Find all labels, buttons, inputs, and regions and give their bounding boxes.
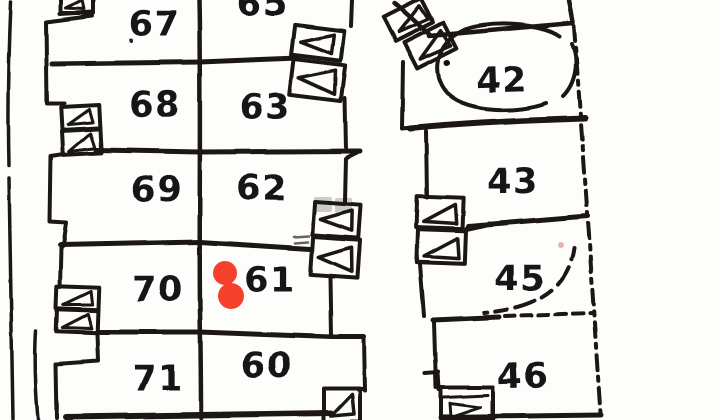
east-boundary-dashed	[574, 26, 601, 420]
unit-label-61: 61	[244, 261, 296, 301]
unit-label-65: 65	[237, 0, 289, 24]
unit-label-60: 60	[241, 346, 293, 386]
porch-stairs-icon	[61, 0, 93, 13]
porch-stairs-icon	[415, 196, 467, 264]
plat-map-scan: 67 68 69 70 71 65 63 62 61 60 42 43 45 4…	[0, 0, 720, 420]
unit-label-69: 69	[131, 170, 183, 210]
plat-map-canvas: 67 68 69 70 71 65 63 62 61 60 42 43 45 4…	[0, 0, 720, 420]
unit-label-70: 70	[132, 270, 184, 310]
location-marker	[213, 261, 244, 309]
porch-stairs-icon	[286, 25, 349, 101]
porch-stairs-icon	[310, 201, 363, 277]
unit-label-62: 62	[236, 169, 288, 210]
road-edge-line	[8, 2, 38, 420]
unit-label-45: 45	[494, 259, 546, 299]
unit-label-46: 46	[496, 356, 549, 398]
unit-label-68: 68	[129, 85, 181, 126]
unit-label-63: 63	[239, 88, 291, 128]
unit-label-67: 67	[129, 5, 181, 45]
porch-stairs-icon	[55, 286, 99, 332]
unit-label-71: 71	[132, 359, 184, 399]
unit-label-42: 42	[475, 60, 528, 102]
scan-speck	[558, 242, 564, 248]
unit-label-43: 43	[487, 162, 539, 202]
porch-stairs-icon	[61, 105, 101, 155]
